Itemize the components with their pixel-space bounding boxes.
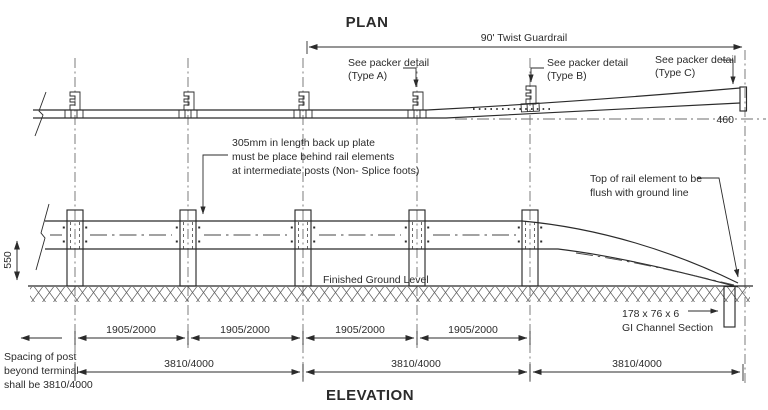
plan-title: PLAN [346,14,389,31]
plan-rail-outline [33,87,766,136]
svg-text:See packer detail: See packer detail [547,57,628,69]
svg-text:1905/2000: 1905/2000 [448,324,498,336]
ground-hatching [30,287,750,302]
elevation-view: 305mm in length back up plate must be pl… [2,137,753,334]
elevation-break-symbol [36,204,49,270]
drawing-sheet: PLAN 90' Twist Guardrail [0,0,768,410]
guardrail-technical-drawing: PLAN 90' Twist Guardrail [0,0,768,410]
svg-text:See packer detail: See packer detail [348,57,429,69]
elevation-title: ELEVATION [326,387,414,404]
svg-text:1905/2000: 1905/2000 [335,324,385,336]
svg-text:3810/4000: 3810/4000 [391,358,441,370]
svg-text:(Type A): (Type A) [348,70,387,82]
svg-text:3810/4000: 3810/4000 [164,358,214,370]
svg-text:Spacing of post: Spacing of post [4,351,76,363]
svg-text:at intermediate posts (Non- Sp: at intermediate posts (Non- Splice foots… [232,165,419,177]
svg-text:3810/4000: 3810/4000 [612,358,662,370]
finished-ground-label: Finished Ground Level [323,274,429,286]
plan-posts [65,86,539,118]
plan-view: PLAN 90' Twist Guardrail [33,14,766,136]
svg-text:(Type B): (Type B) [547,70,587,82]
svg-text:178 x 76 x 6: 178 x 76 x 6 [622,308,679,320]
dimension-annotations: 1905/2000 1905/2000 1905/2000 1905/2000 … [4,324,743,391]
packer-detail-type-c-label: See packer detail (Type C) [655,54,736,84]
svg-text:beyond terminal: beyond terminal [4,365,79,377]
plan-overall-dimension-label: 90' Twist Guardrail [481,32,567,44]
finished-ground: Finished Ground Level [28,274,753,302]
plan-end-width-label: 460 [716,114,734,126]
post-spacing-dimensions: 1905/2000 1905/2000 1905/2000 1905/2000 [21,324,530,345]
terminal-spacing-note: Spacing of post beyond terminal shall be… [4,351,93,391]
plan-break-symbol [35,92,46,136]
svg-text:Top of rail element to be: Top of rail element to be [590,173,702,185]
packer-detail-type-b-label: See packer detail (Type B) [531,57,628,82]
rail-height-label: 550 [2,251,14,269]
svg-text:must be place behind rail elem: must be place behind rail elements [232,151,394,163]
gi-channel-label: 178 x 76 x 6 GI Channel Section [622,308,713,334]
svg-text:1905/2000: 1905/2000 [220,324,270,336]
rail-height-dimension: 550 [2,241,17,280]
svg-text:shall be 3810/4000: shall be 3810/4000 [4,379,93,391]
svg-text:GI Channel Section: GI Channel Section [622,322,713,334]
plan-end-cap [740,87,747,111]
svg-text:(Type C): (Type C) [655,67,695,79]
panel-spacing-dimensions: 3810/4000 3810/4000 3810/4000 [75,358,743,381]
flush-with-ground-note: Top of rail element to be flush with gro… [590,173,738,277]
svg-text:flush with ground line: flush with ground line [590,187,689,199]
svg-text:305mm in length back up plate: 305mm in length back up plate [232,137,375,149]
svg-text:1905/2000: 1905/2000 [106,324,156,336]
backup-plate-note: 305mm in length back up plate must be pl… [203,137,419,214]
plan-overall-dimension: 90' Twist Guardrail [307,32,742,54]
